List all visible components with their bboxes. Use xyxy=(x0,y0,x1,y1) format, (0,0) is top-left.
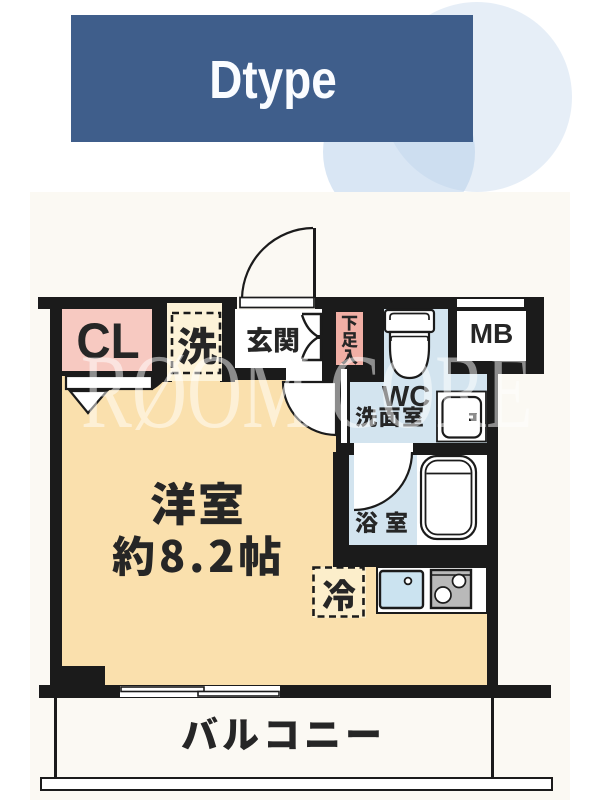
svg-text:Dtype: Dtype xyxy=(209,50,337,110)
svg-text:RØOM CORE: RØOM CORE xyxy=(81,333,533,450)
